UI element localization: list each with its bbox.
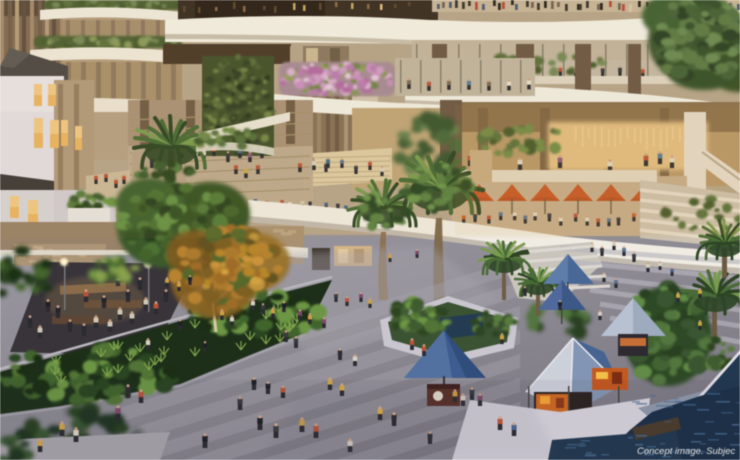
svg-text:Concept image. Subjec: Concept image. Subjec xyxy=(637,446,735,457)
